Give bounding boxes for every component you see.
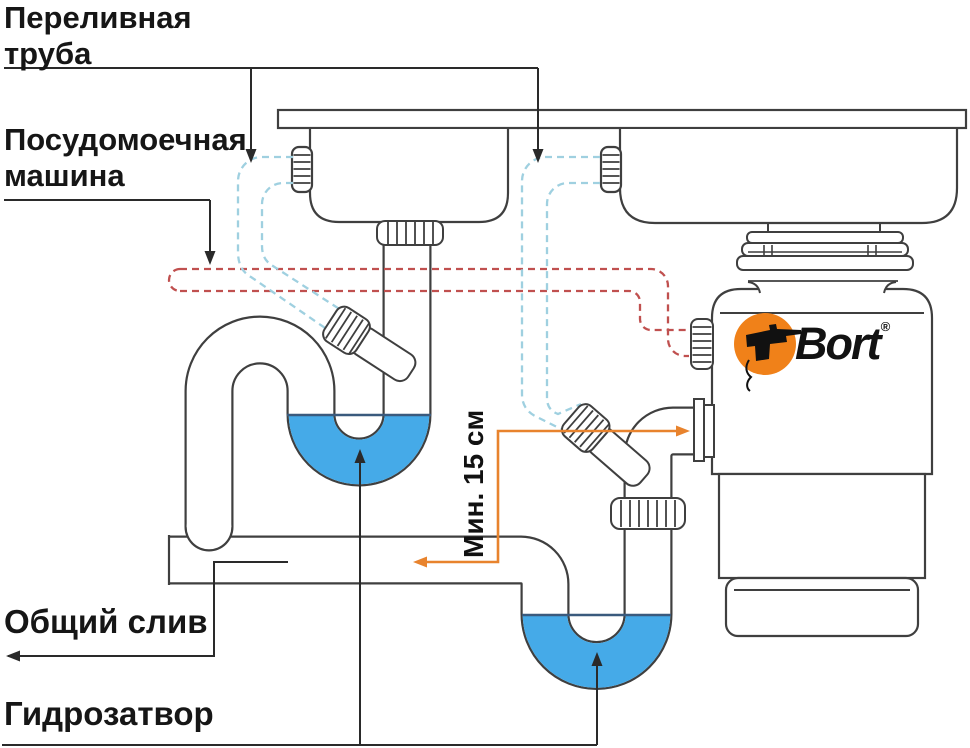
pipe-coupling (611, 498, 685, 529)
disposer-mounting-assembly (737, 222, 913, 281)
right-sink-overflow-connector (601, 147, 621, 192)
registered-mark: ® (880, 319, 890, 334)
overflow-pipe-right (522, 157, 600, 429)
min-distance-label: Мин. 15 см (458, 410, 490, 558)
disposer-outlet-flange (694, 399, 714, 461)
left-sink (310, 129, 508, 222)
left-trap (185, 221, 444, 552)
right-sink (620, 129, 957, 223)
disposer-base (726, 578, 918, 636)
left-sink-overflow-connector (292, 147, 312, 192)
sink-drain-nut (377, 221, 443, 245)
disposer-middle-band (719, 474, 925, 578)
countertop (278, 110, 966, 128)
diagram-canvas (0, 0, 970, 748)
dishwasher-callout (4, 200, 210, 252)
drain-pipe-and-right-trap (169, 399, 714, 666)
bort-name: Bort (795, 318, 879, 369)
plumbing-diagram: Переливная труба Посудомоечная машина Об… (0, 0, 970, 748)
bort-wordmark: Bort® (795, 318, 890, 370)
dishwasher-inlet-collar (691, 319, 713, 369)
countertop-and-sinks (278, 110, 966, 223)
water-trap-callout (2, 460, 597, 745)
